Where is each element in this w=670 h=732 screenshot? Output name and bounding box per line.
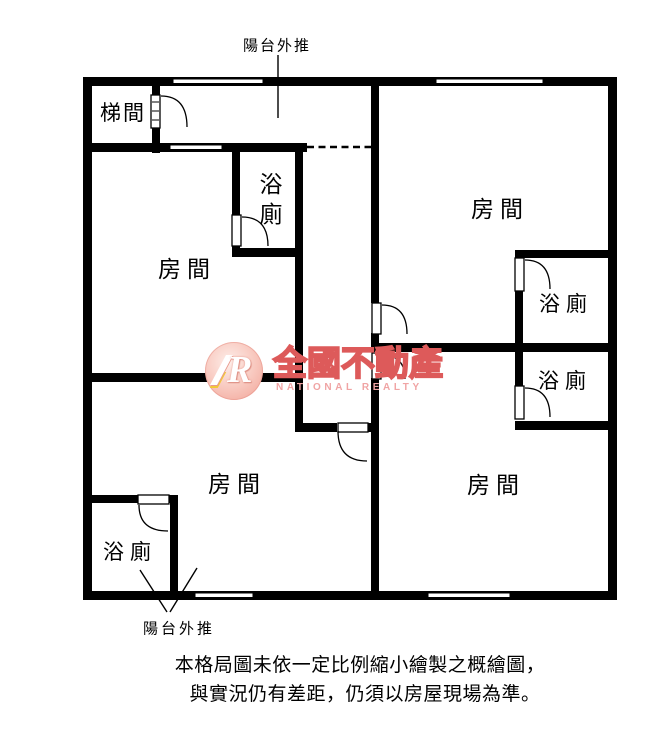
watermark-brand-name: 全國不動產	[273, 345, 443, 385]
entry-door	[151, 95, 187, 128]
logo-letter: R	[227, 348, 252, 392]
mid-bathroom-label: 浴廁	[251, 172, 285, 232]
leader-lines	[140, 55, 278, 612]
disclaimer-line-1: 本格局圖未依一定比例縮小繪製之概繪圖，	[175, 650, 546, 677]
upper-right-bathroom-door	[515, 258, 550, 291]
top-right-room-door	[372, 303, 407, 334]
disclaimer-line-2: 與實況仍有差距，仍須以房屋現場為準。	[189, 679, 540, 706]
room-label-bottom-left: 房間	[208, 465, 266, 499]
floorplan-page: 陽台外推 梯間 浴廁 房間 房間 浴廁 浴廁 房間 房間 浴廁 陽台外推 R 全…	[0, 0, 670, 732]
bottom-left-bathroom-label: 浴廁	[103, 536, 157, 566]
lower-right-bathroom-label: 浴廁	[538, 365, 592, 395]
room-label-bottom-right: 房間	[467, 466, 525, 500]
stairwell-label: 梯間	[100, 97, 146, 127]
balcony-pushout-label-bottom: 陽台外推	[143, 618, 215, 639]
balcony-pushout-label-top: 陽台外推	[243, 35, 311, 56]
watermark-brand-name-en: NATIONAL REALTY	[276, 382, 423, 393]
upper-right-bathroom-label: 浴廁	[539, 288, 593, 318]
realty-logo-circle: R	[205, 342, 263, 400]
windows	[170, 79, 543, 598]
bottom-left-room-door	[338, 423, 368, 461]
room-label-top-right: 房間	[471, 190, 529, 224]
room-label-middle-left: 房間	[158, 250, 216, 284]
bottom-left-bathroom-door	[138, 495, 169, 531]
inner-walls	[83, 86, 617, 600]
outer-walls	[83, 77, 617, 600]
